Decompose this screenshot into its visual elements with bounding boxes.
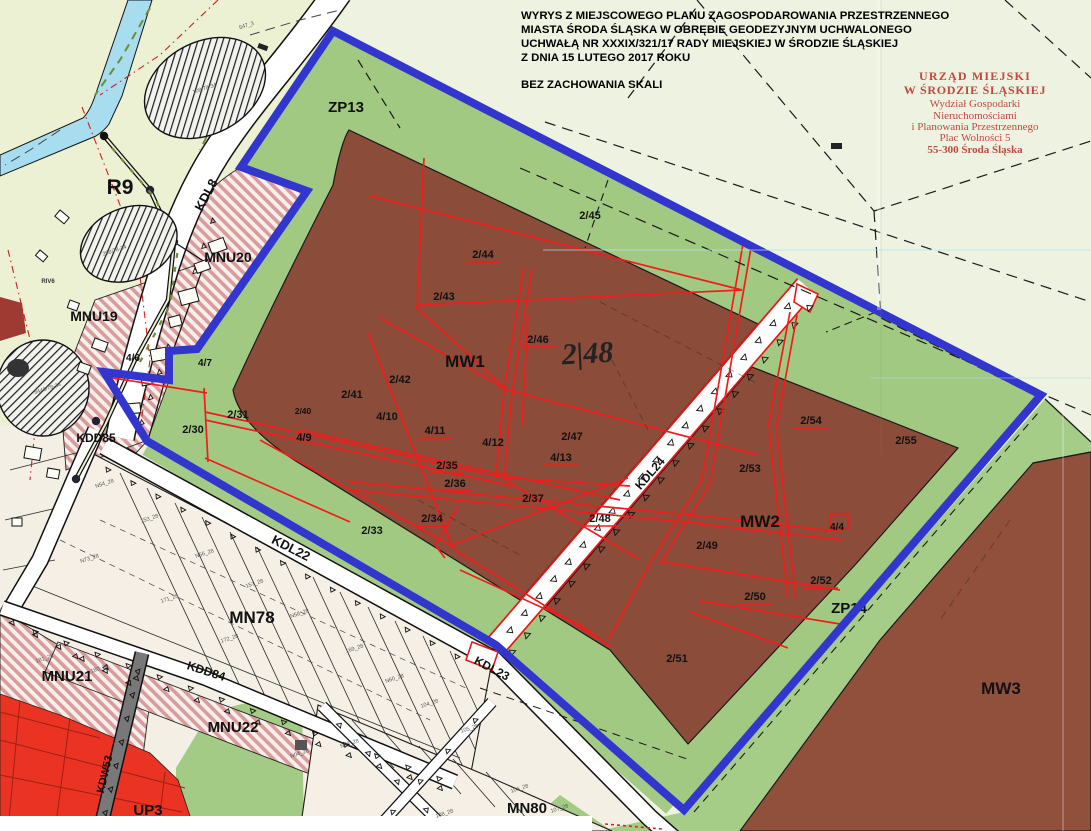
svg-text:2/45: 2/45 — [579, 210, 600, 222]
svg-text:4/7: 4/7 — [198, 358, 212, 369]
svg-text:2/37: 2/37 — [522, 493, 543, 505]
svg-text:2/48: 2/48 — [589, 513, 610, 525]
svg-text:UCHWAŁĄ NR XXXIX/321/17 RADY M: UCHWAŁĄ NR XXXIX/321/17 RADY MIEJSKIEJ W… — [521, 37, 898, 50]
svg-text:Wydział Gospodarki: Wydział Gospodarki — [930, 98, 1021, 110]
svg-text:2/31: 2/31 — [227, 409, 248, 421]
svg-text:MN78: MN78 — [229, 608, 274, 627]
svg-text:R9: R9 — [107, 176, 134, 199]
svg-text:MNU20: MNU20 — [204, 249, 252, 265]
svg-text:2/51: 2/51 — [666, 653, 687, 665]
svg-text:MW1: MW1 — [445, 352, 485, 371]
svg-text:2/35: 2/35 — [436, 460, 457, 472]
svg-text:2/53: 2/53 — [739, 463, 760, 475]
svg-text:Plac Wolności 5: Plac Wolności 5 — [939, 132, 1011, 144]
svg-text:2/41: 2/41 — [341, 389, 362, 401]
svg-text:4/12: 4/12 — [482, 437, 503, 449]
svg-text:MW2: MW2 — [740, 512, 780, 531]
svg-text:MW3: MW3 — [981, 679, 1021, 698]
svg-text:2/36: 2/36 — [444, 478, 465, 490]
svg-text:MNU19: MNU19 — [70, 308, 118, 324]
svg-text:4/6: 4/6 — [126, 353, 140, 364]
svg-text:55-300 Środa Śląska: 55-300 Środa Śląska — [927, 144, 1023, 156]
svg-text:MNU22: MNU22 — [208, 719, 259, 736]
svg-text:4/4: 4/4 — [830, 522, 844, 533]
svg-text:2/49: 2/49 — [696, 540, 717, 552]
svg-text:URZĄD MIEJSKI: URZĄD MIEJSKI — [919, 69, 1031, 83]
svg-text:2|48: 2|48 — [560, 336, 614, 372]
svg-text:2/55: 2/55 — [895, 435, 916, 447]
svg-text:2/46: 2/46 — [527, 334, 548, 346]
svg-text:2/30: 2/30 — [182, 424, 203, 436]
svg-text:MN80: MN80 — [507, 800, 547, 817]
svg-text:KDD85: KDD85 — [76, 431, 116, 445]
svg-text:2/40: 2/40 — [295, 406, 312, 416]
svg-text:MIASTA ŚRODA ŚLĄSKA W OBRĘBIE: MIASTA ŚRODA ŚLĄSKA W OBRĘBIE GEODEZYJNY… — [521, 23, 912, 36]
svg-text:2/54: 2/54 — [800, 415, 822, 427]
svg-text:2/50: 2/50 — [744, 591, 765, 603]
svg-text:WYRYS Z MIEJSCOWEGO PLANU ZAGO: WYRYS Z MIEJSCOWEGO PLANU ZAGOSPODAROWAN… — [521, 10, 949, 22]
svg-text:UP3: UP3 — [133, 802, 162, 819]
svg-text:MNU21: MNU21 — [42, 668, 93, 685]
svg-text:4/11: 4/11 — [425, 425, 446, 437]
svg-text:2/44: 2/44 — [472, 249, 494, 261]
svg-text:4/13: 4/13 — [550, 452, 571, 464]
svg-text:2/34: 2/34 — [421, 513, 443, 525]
svg-text:2/52: 2/52 — [810, 575, 831, 587]
svg-text:RIV6: RIV6 — [41, 279, 55, 285]
svg-text:2/42: 2/42 — [389, 374, 410, 386]
svg-text:ZP13: ZP13 — [328, 99, 364, 116]
svg-text:4/10: 4/10 — [376, 411, 397, 423]
svg-text:W ŚRODZIE ŚLĄSKIEJ: W ŚRODZIE ŚLĄSKIEJ — [904, 83, 1046, 97]
svg-text:2/47: 2/47 — [561, 431, 582, 443]
svg-text:BEZ ZACHOWANIA SKALI: BEZ ZACHOWANIA SKALI — [521, 79, 662, 91]
svg-text:2/43: 2/43 — [433, 291, 454, 303]
svg-text:Z DNIA 15 LUTEGO 2017 ROKU: Z DNIA 15 LUTEGO 2017 ROKU — [521, 52, 690, 64]
svg-text:4/9: 4/9 — [296, 432, 311, 444]
svg-text:2/33: 2/33 — [361, 525, 382, 537]
